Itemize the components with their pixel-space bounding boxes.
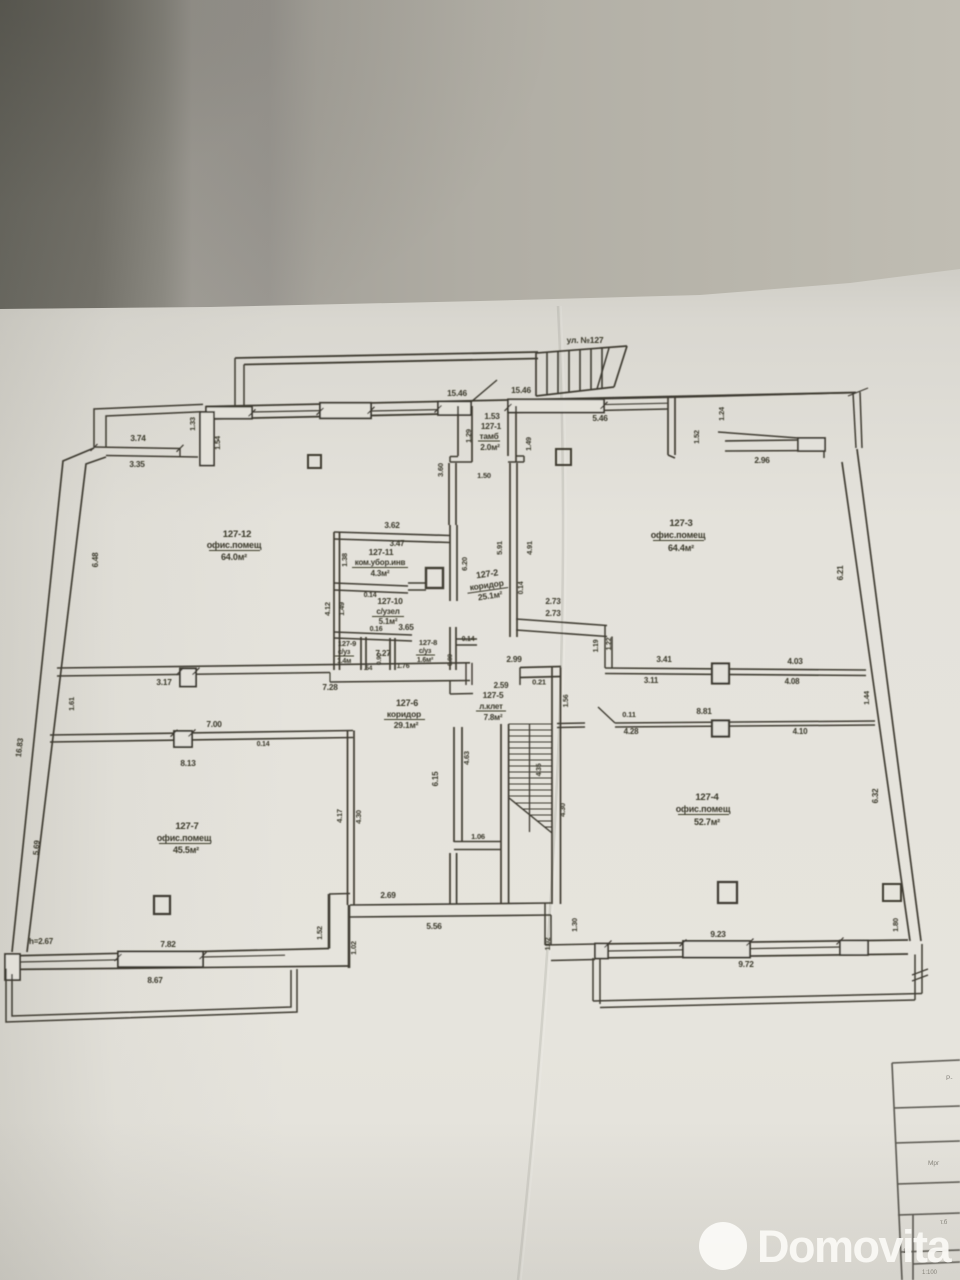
svg-text:с/уз: с/уз — [338, 649, 351, 656]
svg-text:1.6м²: 1.6м² — [417, 657, 434, 664]
svg-text:ком.убор.инв: ком.убор.инв — [355, 558, 406, 567]
svg-text:3.17: 3.17 — [156, 677, 172, 687]
svg-text:0.89: 0.89 — [447, 653, 454, 665]
svg-text:1.52: 1.52 — [692, 430, 701, 444]
svg-text:Domovita: Domovita — [757, 1221, 953, 1272]
svg-text:ул. №127: ул. №127 — [567, 335, 604, 345]
svg-text:4.63: 4.63 — [462, 751, 471, 765]
svg-text:64.4м²: 64.4м² — [668, 543, 694, 553]
svg-text:6.21: 6.21 — [836, 565, 845, 581]
svg-text:офис.помещ: офис.помещ — [157, 833, 212, 843]
svg-text:Р-: Р- — [946, 1075, 953, 1082]
svg-text:127-5: 127-5 — [483, 690, 504, 700]
svg-text:1.30: 1.30 — [570, 918, 579, 932]
svg-text:Мрг: Мрг — [928, 1160, 940, 1167]
svg-text:5.1м²: 5.1м² — [379, 617, 398, 626]
svg-text:4.10: 4.10 — [793, 727, 809, 736]
svg-text:127-7: 127-7 — [175, 821, 198, 832]
svg-text:127-10: 127-10 — [377, 596, 403, 606]
svg-text:127-3: 127-3 — [669, 518, 692, 529]
svg-text:1.19: 1.19 — [593, 639, 600, 652]
svg-text:1.29: 1.29 — [464, 429, 473, 443]
svg-text:127-8: 127-8 — [419, 638, 437, 647]
svg-text:0.14: 0.14 — [364, 592, 377, 599]
svg-text:8.67: 8.67 — [147, 975, 163, 985]
svg-text:6.48: 6.48 — [91, 552, 100, 568]
svg-text:4.28: 4.28 — [624, 727, 640, 736]
svg-text:1.49: 1.49 — [337, 602, 346, 616]
svg-text:5.46: 5.46 — [592, 413, 608, 423]
svg-text:3.74: 3.74 — [130, 433, 146, 443]
svg-text:29.1м²: 29.1м² — [394, 720, 419, 730]
svg-text:7.28: 7.28 — [322, 682, 338, 692]
svg-text:4.30: 4.30 — [354, 810, 363, 824]
svg-text:1.06: 1.06 — [471, 832, 485, 841]
svg-text:2.0м²: 2.0м² — [480, 442, 500, 452]
svg-text:1.22: 1.22 — [606, 637, 613, 650]
svg-text:0.16: 0.16 — [370, 626, 383, 633]
svg-text:7.8м²: 7.8м² — [484, 713, 503, 722]
svg-text:4.35: 4.35 — [536, 763, 543, 776]
svg-text:1.49: 1.49 — [524, 437, 533, 451]
svg-text:л.клет: л.клет — [479, 702, 503, 711]
svg-text:1.50: 1.50 — [477, 471, 491, 480]
svg-text:9.23: 9.23 — [710, 929, 726, 939]
svg-text:3.41: 3.41 — [656, 654, 672, 664]
svg-text:3.11: 3.11 — [644, 676, 659, 685]
svg-text:с/узел: с/узел — [376, 607, 399, 616]
svg-text:1.44: 1.44 — [862, 690, 871, 705]
svg-text:2.69: 2.69 — [380, 890, 396, 900]
svg-text:3.35: 3.35 — [129, 459, 145, 469]
svg-text:4.08: 4.08 — [785, 677, 801, 686]
svg-text:6.32: 6.32 — [871, 788, 880, 804]
svg-text:2.96: 2.96 — [754, 455, 770, 465]
svg-text:2.99: 2.99 — [506, 654, 522, 664]
svg-text:тамб: тамб — [479, 431, 498, 441]
svg-text:офис.помещ: офис.помещ — [207, 540, 262, 550]
svg-text:4.91: 4.91 — [525, 541, 534, 555]
svg-text:1.02: 1.02 — [349, 941, 358, 955]
svg-text:7.00: 7.00 — [206, 719, 222, 729]
svg-text:127-4: 127-4 — [695, 792, 719, 803]
svg-text:8.81: 8.81 — [696, 706, 712, 716]
svg-text:4.30: 4.30 — [558, 803, 567, 817]
svg-text:4.17: 4.17 — [335, 809, 344, 823]
svg-text:h=2.67: h=2.67 — [29, 937, 54, 946]
svg-text:127-12: 127-12 — [223, 529, 251, 540]
svg-text:1.24: 1.24 — [717, 406, 726, 421]
svg-text:0.14: 0.14 — [462, 636, 475, 643]
svg-text:0.14: 0.14 — [257, 741, 270, 748]
svg-text:64.0м²: 64.0м² — [221, 552, 247, 562]
svg-text:1.80: 1.80 — [891, 918, 900, 932]
svg-text:2.59: 2.59 — [494, 681, 510, 690]
svg-text:1.56: 1.56 — [563, 694, 570, 707]
svg-text:1.33: 1.33 — [188, 417, 197, 431]
svg-text:127-6: 127-6 — [396, 698, 418, 708]
svg-text:офис.помещ: офис.помещ — [651, 530, 706, 540]
svg-text:4.12: 4.12 — [323, 602, 332, 616]
svg-text:45.5м²: 45.5м² — [173, 845, 199, 855]
svg-text:коридор: коридор — [387, 709, 421, 719]
svg-text:7.82: 7.82 — [160, 939, 176, 949]
svg-text:15.46: 15.46 — [447, 388, 467, 398]
svg-text:0.14: 0.14 — [518, 581, 525, 594]
svg-text:127-11: 127-11 — [369, 547, 394, 557]
svg-text:3.62: 3.62 — [384, 520, 400, 530]
svg-text:офис.помещ: офис.помещ — [676, 804, 731, 814]
svg-text:6.15: 6.15 — [431, 771, 440, 787]
svg-text:2.73: 2.73 — [545, 608, 561, 618]
svg-text:4.03: 4.03 — [787, 656, 803, 666]
svg-text:127-1: 127-1 — [481, 421, 502, 431]
svg-text:.54: .54 — [364, 665, 373, 672]
svg-text:0.21: 0.21 — [532, 678, 546, 687]
svg-text:1.61: 1.61 — [67, 697, 76, 711]
svg-text:3.60: 3.60 — [436, 463, 445, 477]
svg-text:8.13: 8.13 — [180, 758, 196, 768]
svg-text:9.72: 9.72 — [738, 959, 754, 969]
svg-text:5.56: 5.56 — [426, 921, 442, 931]
svg-text:4.3м²: 4.3м² — [371, 569, 390, 578]
svg-text:1.53: 1.53 — [484, 411, 500, 421]
svg-text:15.46: 15.46 — [511, 385, 531, 395]
svg-text:127-9: 127-9 — [338, 639, 356, 648]
svg-text:1.54: 1.54 — [213, 435, 222, 450]
svg-text:1.02: 1.02 — [545, 937, 552, 950]
svg-text:1.52: 1.52 — [315, 926, 324, 940]
svg-text:0.11: 0.11 — [622, 710, 635, 719]
svg-text:0.90: 0.90 — [376, 652, 383, 664]
svg-text:1.38: 1.38 — [340, 553, 349, 567]
svg-text:5.91: 5.91 — [495, 541, 504, 555]
svg-text:с/уз: с/уз — [419, 648, 432, 655]
svg-text:2.73: 2.73 — [545, 596, 561, 606]
svg-text:3.65: 3.65 — [398, 622, 414, 632]
svg-text:1.4м: 1.4м — [337, 658, 351, 665]
svg-text:6.20: 6.20 — [460, 557, 469, 571]
svg-text:52.7м²: 52.7м² — [694, 817, 720, 827]
svg-text:1.76: 1.76 — [397, 663, 410, 670]
svg-text:5.69: 5.69 — [31, 839, 41, 855]
